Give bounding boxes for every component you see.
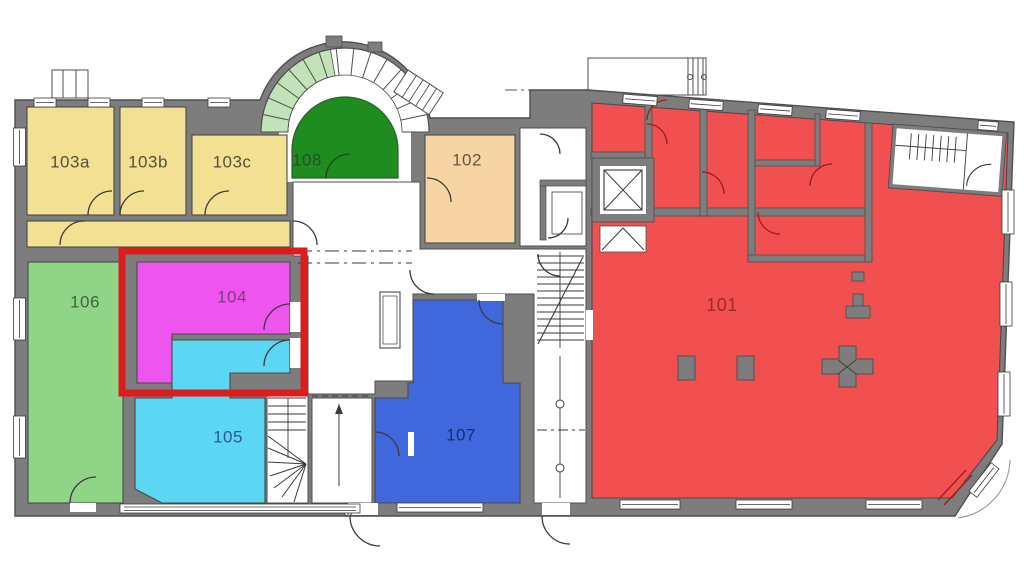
room-label-104: 104 bbox=[217, 288, 247, 307]
pillar bbox=[852, 272, 864, 281]
pillar bbox=[853, 294, 863, 306]
room-label-105: 105 bbox=[213, 428, 243, 447]
room-label-106: 106 bbox=[70, 293, 100, 312]
pillar bbox=[737, 356, 754, 380]
exterior-structure-right bbox=[588, 58, 707, 95]
room-label-108: 108 bbox=[292, 151, 322, 170]
room-label-103a: 103a bbox=[50, 153, 90, 172]
stair-room-northeast bbox=[888, 124, 1006, 196]
room-label-103b: 103b bbox=[128, 153, 168, 172]
room-label-102: 102 bbox=[452, 151, 482, 170]
room-label-101: 101 bbox=[706, 295, 738, 315]
hallway-103 bbox=[27, 221, 290, 247]
room-103c[interactable] bbox=[192, 135, 287, 215]
floor-plan: 103a 103b 103c 108 102 106 104 105 107 1… bbox=[0, 0, 1024, 567]
light-shaft bbox=[380, 292, 400, 348]
pillar bbox=[678, 356, 695, 380]
elevator bbox=[592, 158, 654, 252]
tower-tab bbox=[368, 42, 382, 52]
pillar bbox=[846, 306, 870, 318]
corridor-east-of-102 bbox=[520, 128, 586, 246]
tower-tab bbox=[326, 36, 342, 47]
floor-plan-canvas: 103a 103b 103c 108 102 106 104 105 107 1… bbox=[0, 0, 1024, 567]
stairwell-west bbox=[267, 396, 308, 503]
exterior-porch bbox=[52, 70, 88, 98]
room-label-103c: 103c bbox=[213, 153, 252, 172]
room-label-107: 107 bbox=[446, 426, 476, 445]
